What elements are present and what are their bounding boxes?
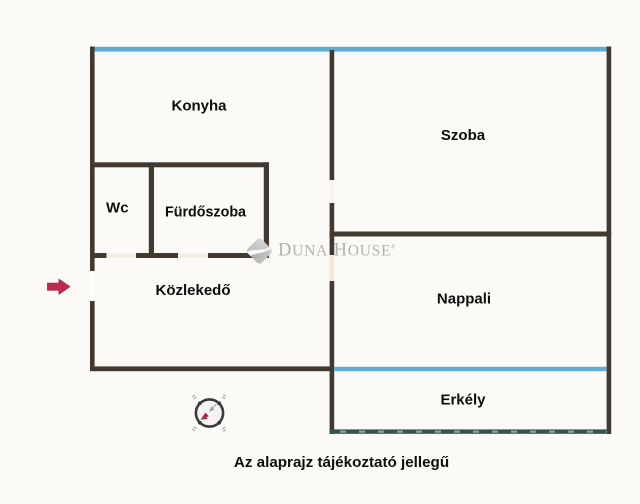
svg-text:DUNA HOUSE: DUNA HOUSE	[278, 241, 391, 261]
svg-text:®: ®	[391, 244, 396, 251]
svg-text:Konyha: Konyha	[171, 98, 227, 115]
svg-text:Fürdőszoba: Fürdőszoba	[165, 204, 247, 220]
svg-text:Wc: Wc	[106, 200, 129, 217]
svg-text:Nappali: Nappali	[437, 291, 491, 308]
svg-text:Erkély: Erkély	[440, 392, 486, 409]
svg-text:Szoba: Szoba	[441, 127, 486, 144]
svg-text:Közlekedő: Közlekedő	[155, 282, 230, 299]
svg-text:Az alaprajz tájékoztató jelleg: Az alaprajz tájékoztató jellegű	[234, 454, 449, 471]
